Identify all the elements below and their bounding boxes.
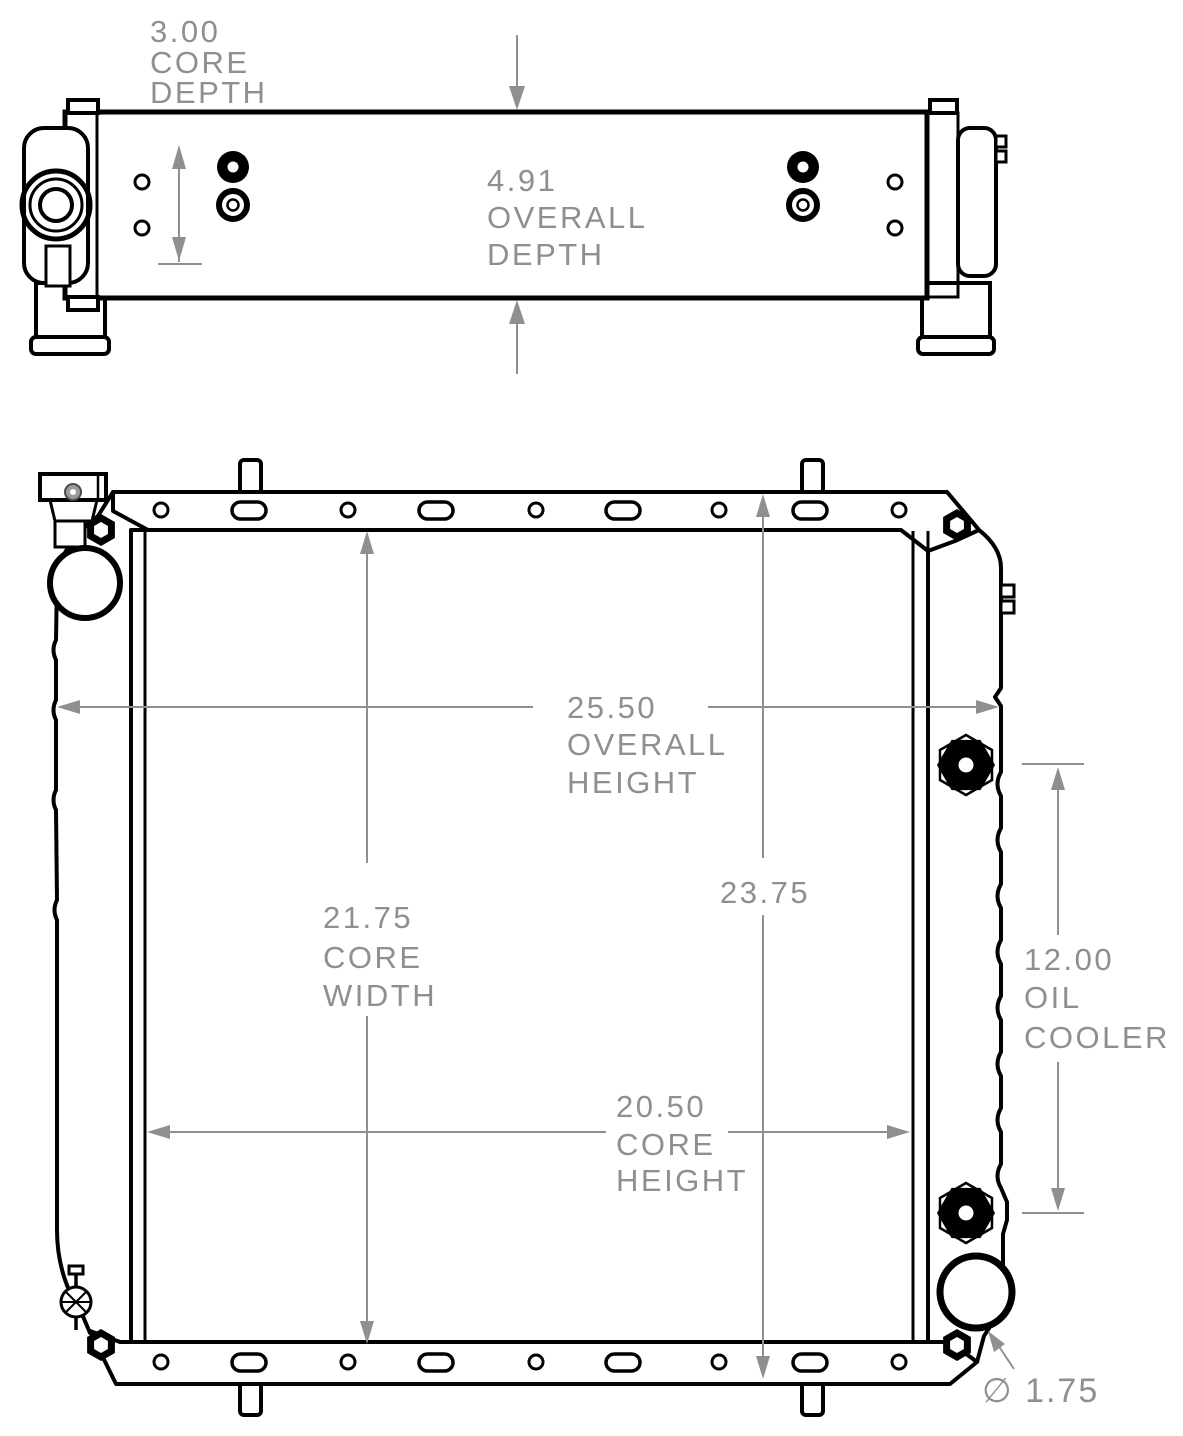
dim-core-width: 21.75 CORE WIDTH bbox=[323, 531, 437, 1344]
dim-outlet-diameter-value: ∅ 1.75 bbox=[982, 1372, 1099, 1410]
filler-neck bbox=[22, 128, 90, 286]
dim-overall-height-label2: HEIGHT bbox=[567, 765, 699, 800]
mounting-flange-bottom bbox=[90, 1331, 977, 1384]
dim-oil-cooler: 12.00 OIL COOLER bbox=[1022, 764, 1170, 1213]
right-mounting-bracket bbox=[927, 100, 958, 297]
dim-core-height-label2: HEIGHT bbox=[616, 1163, 748, 1198]
side-fitting bbox=[1001, 601, 1014, 613]
side-fitting bbox=[1001, 585, 1014, 597]
oil-cooler-tank-top-view bbox=[958, 128, 1006, 276]
dim-core-depth-label2: DEPTH bbox=[150, 75, 268, 110]
dim-overall-depth: 4.91 OVERALL DEPTH bbox=[487, 35, 648, 374]
dim-core-depth-value: 3.00 bbox=[150, 14, 220, 49]
front-view: 25.50 OVERALL HEIGHT 21.75 CORE WIDTH 23… bbox=[40, 460, 1170, 1415]
dim-core-width-label1: CORE bbox=[323, 940, 423, 975]
top-view: 3.00 CORE DEPTH 4.91 OVERALL DEPTH bbox=[22, 14, 1006, 374]
dim-overall-depth-value: 4.91 bbox=[487, 163, 557, 198]
dim-outlet-diameter: ∅ 1.75 bbox=[982, 1331, 1099, 1410]
dim-core-height-label1: CORE bbox=[616, 1127, 716, 1162]
dim-oil-cooler-value: 12.00 bbox=[1024, 942, 1114, 977]
dim-overall-height-value: 25.50 bbox=[567, 690, 657, 725]
outlet-port bbox=[940, 1256, 1012, 1328]
dim-oil-cooler-label2: COOLER bbox=[1024, 1020, 1170, 1055]
dim-core-height-value: 20.50 bbox=[616, 1089, 706, 1124]
dim-overall-height-label1: OVERALL bbox=[567, 727, 728, 762]
dim-overall-height: 25.50 OVERALL HEIGHT bbox=[57, 690, 999, 800]
drawing-canvas: 3.00 CORE DEPTH 4.91 OVERALL DEPTH bbox=[0, 0, 1183, 1436]
dim-core-width-value: 21.75 bbox=[323, 900, 413, 935]
flange-pegs bbox=[240, 460, 823, 1415]
dim-tank-to-tank-value: 23.75 bbox=[720, 875, 810, 910]
core-side-lines bbox=[131, 531, 928, 1341]
inlet-port bbox=[50, 548, 120, 618]
dim-core-height: 20.50 CORE HEIGHT bbox=[147, 1089, 910, 1198]
dim-overall-depth-label2: DEPTH bbox=[487, 237, 605, 272]
dim-tank-to-tank: 23.75 bbox=[720, 494, 810, 1379]
dim-core-width-label2: WIDTH bbox=[323, 978, 437, 1013]
dim-overall-depth-label1: OVERALL bbox=[487, 200, 648, 235]
dim-oil-cooler-label1: OIL bbox=[1024, 980, 1081, 1015]
